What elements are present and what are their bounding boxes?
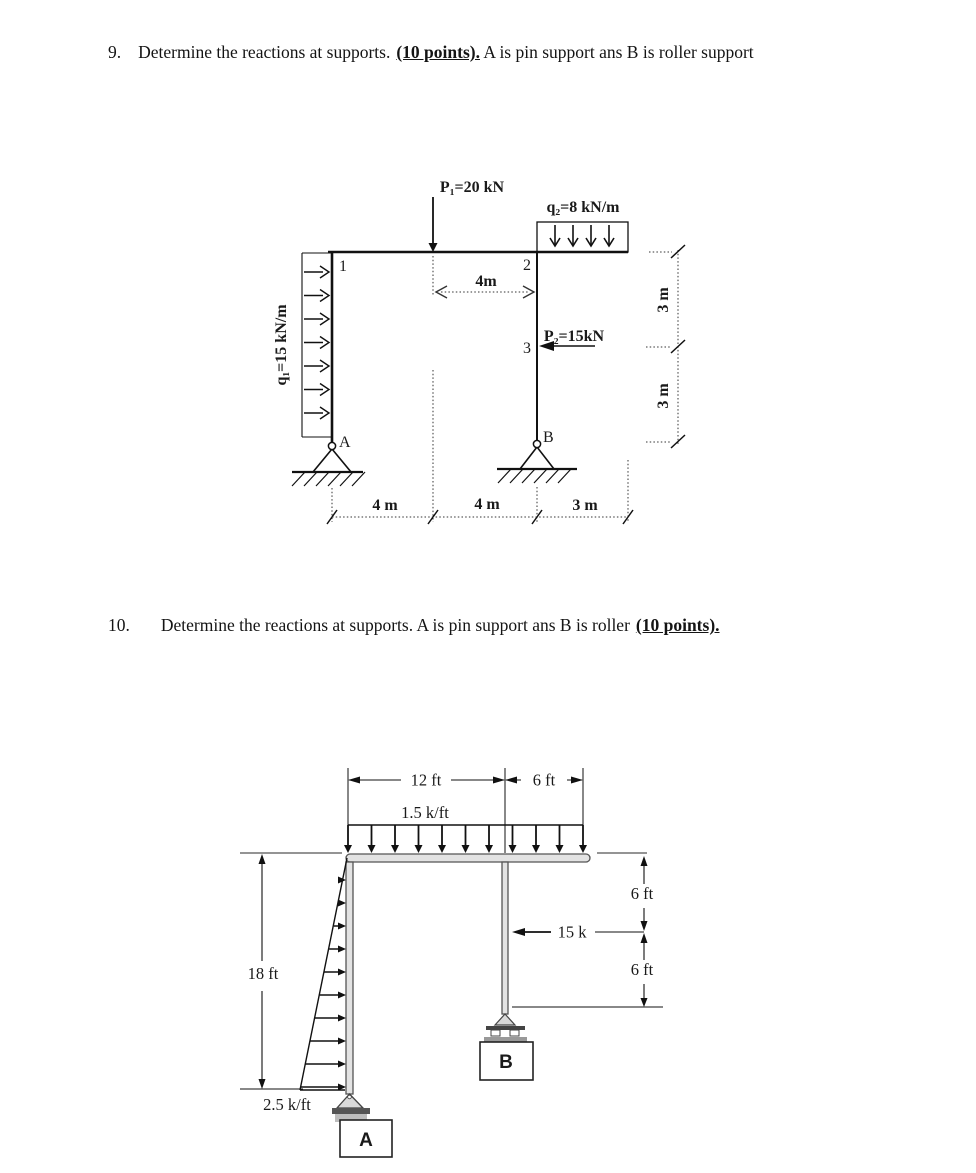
dim-12ft-label: 12 ft bbox=[411, 771, 442, 790]
q2-label: q₂=8 kN/m bbox=[546, 199, 620, 216]
dim-bottom-1-label: 4 m bbox=[372, 497, 398, 514]
node-1-label: 1 bbox=[339, 258, 347, 275]
dim-right-lower-label: 3 m bbox=[655, 383, 672, 409]
p1-label: P₁=20 kN bbox=[440, 179, 505, 196]
problem-10-number: 10. bbox=[108, 615, 130, 636]
distributed-load-q2: q₂=8 kN/m bbox=[537, 199, 628, 252]
frame-diagram-problem-9: P₁=20 kN q₂=8 kN/m 1 2 3 4m bbox=[235, 165, 705, 565]
triangular-load-icon bbox=[300, 858, 347, 1091]
pin-support-a-icon bbox=[292, 442, 365, 486]
p1-arrowhead-icon bbox=[429, 243, 438, 252]
problem-9-statement-after: A is pin support ans B is roller support bbox=[483, 42, 753, 62]
problem-9-number: 9. bbox=[108, 42, 121, 63]
pin-support-a-icon bbox=[332, 1094, 370, 1122]
dim-4m-top-label: 4m bbox=[475, 273, 497, 290]
support-a-label: A bbox=[339, 434, 351, 451]
q2-arrows-icon bbox=[550, 225, 614, 246]
support-a-box: A bbox=[340, 1120, 392, 1157]
force-15k-label: 15 k bbox=[558, 923, 588, 942]
problem-10-heading: 10.Determine the reactions at supports. … bbox=[108, 615, 720, 636]
roller-support-b-icon bbox=[497, 440, 577, 483]
q1-arrows-icon bbox=[304, 266, 329, 419]
q1-label: q₁=15 kN/m bbox=[273, 304, 290, 386]
support-a-label: A bbox=[359, 1130, 373, 1151]
right-dimension-chain bbox=[646, 250, 678, 444]
frame-diagram-problem-10: 12 ft 6 ft 1.5 k/ft bbox=[235, 763, 675, 1173]
support-b-box: B bbox=[480, 1042, 533, 1080]
support-b-label: B bbox=[543, 429, 554, 446]
distributed-load-q1: q₁=15 kN/m bbox=[273, 253, 332, 437]
point-load-p2: P₂=15kN bbox=[539, 328, 605, 351]
exam-page: 9.Determine the reactions at supports.(1… bbox=[0, 0, 976, 1173]
problem-9-points: (10 points). bbox=[396, 42, 480, 62]
top-distributed-load-icon bbox=[344, 825, 587, 853]
dim-6ft-top-label: 6 ft bbox=[533, 771, 556, 790]
roller-support-b-icon bbox=[484, 1014, 527, 1042]
node-2-label: 2 bbox=[523, 257, 531, 274]
dim-bottom-3-label: 3 m bbox=[572, 497, 598, 514]
force-15k-arrowhead-icon bbox=[512, 928, 525, 936]
dim-6ft-right-upper-label: 6 ft bbox=[631, 884, 654, 903]
node-3-label: 3 bbox=[523, 340, 531, 357]
load-1-5kft-label: 1.5 k/ft bbox=[401, 803, 449, 822]
problem-10-statement: Determine the reactions at supports. A i… bbox=[161, 615, 630, 635]
problem-10-points: (10 points). bbox=[636, 615, 720, 635]
problem-9-heading: 9.Determine the reactions at supports.(1… bbox=[108, 42, 754, 63]
load-2-5kft-label: 2.5 k/ft bbox=[263, 1095, 311, 1114]
dim-right-upper-label: 3 m bbox=[655, 287, 672, 313]
dim-bottom-2-label: 4 m bbox=[474, 496, 500, 513]
support-b-label: B bbox=[499, 1052, 513, 1073]
problem-9-statement: Determine the reactions at supports. bbox=[138, 42, 390, 62]
dim-18ft-label: 18 ft bbox=[248, 964, 279, 983]
dim-6ft-right-lower-label: 6 ft bbox=[631, 960, 654, 979]
point-load-p1: P₁=20 kN bbox=[429, 179, 505, 252]
frame-members bbox=[346, 854, 590, 1094]
